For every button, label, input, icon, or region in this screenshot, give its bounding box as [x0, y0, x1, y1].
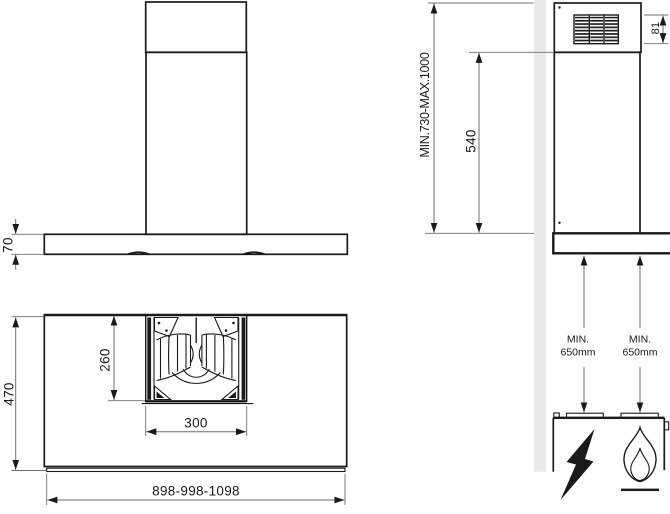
- motor-right-rail: [242, 318, 246, 400]
- side-view: [425, 0, 670, 472]
- label-body-height: 540: [464, 129, 479, 152]
- label-motor-depth: 260: [97, 348, 112, 371]
- mount-plate-right: [215, 318, 239, 337]
- screw-dot-top: [558, 6, 560, 8]
- label-clearance-right: MIN. 650mm: [622, 333, 657, 358]
- plate-dot: [232, 322, 235, 325]
- lightning-bolt-icon: [561, 429, 595, 500]
- hood-canopy-side: [553, 233, 670, 253]
- technical-drawing: [0, 0, 670, 514]
- label-total-height-range: MIN.730-MAX.1000: [418, 53, 432, 158]
- label-grille-height: 81: [650, 22, 662, 35]
- label-clearance-right-line1: MIN.: [622, 333, 657, 346]
- mount-plate-left: [155, 318, 179, 337]
- hood-body-side: [554, 52, 640, 233]
- blower-volute-curves: [172, 369, 220, 383]
- motor-left-rail: [147, 318, 151, 400]
- label-depth: 470: [1, 382, 16, 405]
- grille-louvers-col1: [575, 17, 589, 43]
- plate-dot: [165, 329, 168, 332]
- installation-drawing-canvas: 70 MIN.730-MAX.1000 540 81 470 260 300 8…: [0, 0, 670, 514]
- chimney-upper-section: [146, 2, 247, 52]
- label-width-options: 898-998-1098: [152, 484, 240, 499]
- gas-flame-icon: [621, 428, 659, 490]
- label-clearance-left-line2: 650mm: [560, 346, 595, 359]
- label-clearance-right-line2: 650mm: [622, 346, 657, 359]
- plan-view: [12, 315, 347, 505]
- wall-surface: [534, 0, 546, 472]
- plate-dot: [158, 322, 161, 325]
- depth-extensions: [12, 317, 47, 471]
- chimney-lower-section: [146, 52, 247, 234]
- hood-canopy-front: [44, 234, 347, 254]
- label-motor-width: 300: [184, 415, 207, 430]
- label-clearance-left-line1: MIN.: [560, 333, 595, 346]
- clearance-view: [553, 256, 668, 500]
- blower-assembly: [142, 315, 254, 404]
- label-canopy-height: 70: [1, 237, 16, 253]
- screw-dot-bottom: [558, 222, 560, 224]
- plate-dot: [225, 329, 228, 332]
- label-clearance-left: MIN. 650mm: [560, 333, 595, 358]
- grille-louvers-col3: [605, 17, 618, 43]
- hood-front-edge-strip: [47, 468, 345, 471]
- front-view: [12, 2, 348, 270]
- grille-louvers-col2: [590, 17, 603, 43]
